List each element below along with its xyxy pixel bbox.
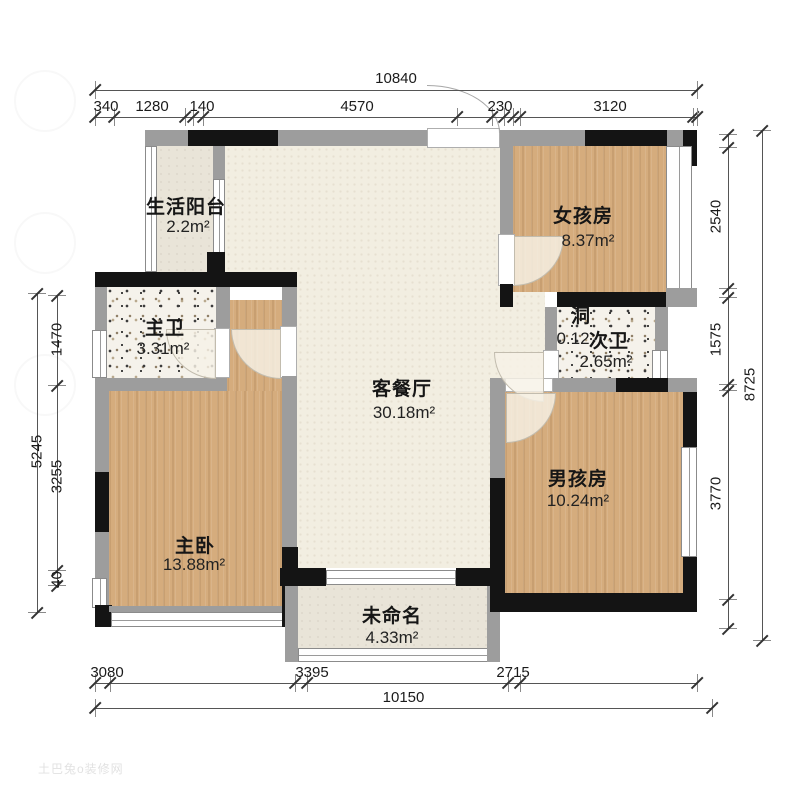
window-master-left xyxy=(92,578,107,608)
wall-master-left-black xyxy=(95,472,109,532)
room-area-girl: 8.37m² xyxy=(528,231,648,251)
wall-boy-north-ext xyxy=(668,378,697,392)
wall-girl-west xyxy=(500,146,513,236)
wall-hall-east-lower xyxy=(282,376,297,391)
window-unnamed-bottom xyxy=(298,648,488,662)
wall-boy-west xyxy=(490,392,505,478)
dim-bottom-total: 10150 xyxy=(95,689,712,706)
wall-girl-corner-se xyxy=(666,288,697,307)
wall-top-black-1 xyxy=(188,130,278,146)
dim-right-3770: 3770 xyxy=(708,464,725,524)
floor-master-bed xyxy=(109,391,282,608)
dim-left-40: 40 xyxy=(49,563,66,597)
watermark-text: 土巴兔o装修网 xyxy=(38,760,124,777)
door-frame-girl xyxy=(498,234,515,286)
dim-top-230: 230 xyxy=(478,98,522,115)
dim-top-total: 10840 xyxy=(95,70,697,87)
room-name-boy: 男孩房 xyxy=(518,464,638,491)
room-area-balcony: 2.2m² xyxy=(128,217,248,237)
dim-top-3120: 3120 xyxy=(584,98,636,115)
room-area-unnamed: 4.33m² xyxy=(332,628,452,648)
dim-top-total-line xyxy=(95,90,697,91)
dim-top-140: 140 xyxy=(182,98,222,115)
wall-unnamed-corner-l xyxy=(285,648,298,662)
watermark-circle xyxy=(14,70,76,132)
wall-masterbath-bottom xyxy=(95,378,227,391)
room-area-boy: 10.24m² xyxy=(518,491,638,511)
wall-balcony-divider xyxy=(213,146,225,181)
window-girl-right xyxy=(666,146,692,290)
dim-right-total: 8725 xyxy=(742,355,759,415)
floorplan-canvas: 土巴兔o装修网 xyxy=(0,0,800,800)
dim-right-seg-line xyxy=(728,134,729,628)
dim-bottom-3080: 3080 xyxy=(81,664,133,681)
wall-boy-west-black xyxy=(490,478,505,595)
wall-masterbath-top xyxy=(95,272,297,287)
dim-left-1470: 1470 xyxy=(49,310,66,370)
wall-boy-east-black-2 xyxy=(683,557,697,597)
door-frame-master-bed xyxy=(280,326,297,378)
room-name-living: 客餐厅 xyxy=(342,374,462,401)
wall-boy-south-black xyxy=(490,593,697,612)
room-name-master: 主卧 xyxy=(135,531,255,558)
wall-balcony-black xyxy=(207,252,225,272)
dim-top-seg-line xyxy=(95,117,697,118)
room-area-living: 30.18m² xyxy=(344,403,464,423)
wall-unnamed-corner-r xyxy=(487,648,500,662)
watermark-circle xyxy=(14,212,76,274)
watermark-circle xyxy=(14,354,76,416)
room-name-secondbath: 次卫 xyxy=(586,326,632,353)
dim-right-total-line xyxy=(762,130,763,640)
dim-right-1575: 1575 xyxy=(708,310,725,370)
wall-top-black-2 xyxy=(585,130,667,146)
dim-bottom-total-line xyxy=(95,708,712,709)
wall-master-right xyxy=(282,391,297,547)
dim-left-total: 5245 xyxy=(29,422,46,482)
wall-girl-west-black xyxy=(500,284,513,307)
dim-bottom-3395: 3395 xyxy=(286,664,338,681)
room-name-shaft: 洞 xyxy=(560,301,602,328)
room-area-master: 13.88m² xyxy=(134,555,254,575)
wall-secondbath-east xyxy=(655,307,668,352)
wall-living-bottom-black-1 xyxy=(280,568,326,586)
dim-right-2540: 2540 xyxy=(708,187,725,247)
wall-boy-east-black-1 xyxy=(683,392,697,447)
window-boy-right xyxy=(681,447,697,557)
room-area-masterbath: 3.31m² xyxy=(103,339,223,359)
dim-top-1280: 1280 xyxy=(126,98,178,115)
room-name-girl: 女孩房 xyxy=(523,201,643,228)
floor-living-top xyxy=(225,146,500,272)
room-name-masterbath: 主卫 xyxy=(105,313,225,340)
wall-unnamed-left xyxy=(285,586,298,648)
dim-top-4570: 4570 xyxy=(331,98,383,115)
sliding-door-unnamed xyxy=(326,570,456,585)
room-name-unnamed: 未命名 xyxy=(332,601,452,628)
room-area-secondbath: 2.65m² xyxy=(570,352,642,372)
dim-bottom-seg-line xyxy=(95,683,697,684)
window-master-bottom xyxy=(111,612,283,627)
wall-hall-east-upper xyxy=(282,287,297,328)
room-name-balcony: 生活阳台 xyxy=(126,192,246,219)
dim-bottom-2715: 2715 xyxy=(487,664,539,681)
wall-boy-north-black xyxy=(616,378,668,392)
dim-left-3255: 3255 xyxy=(49,447,66,507)
dim-top-340: 340 xyxy=(86,98,126,115)
